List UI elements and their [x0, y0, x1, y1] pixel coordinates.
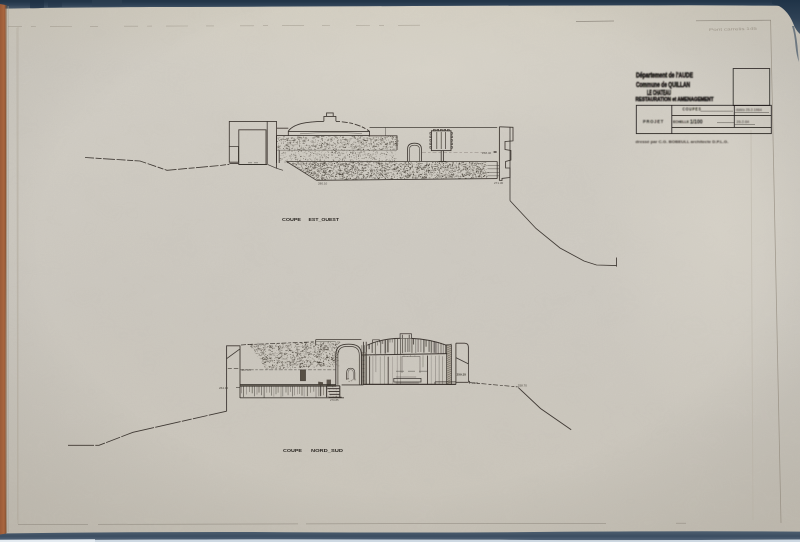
svg-text:258.40: 258.40: [482, 151, 492, 155]
svg-text:Commune de QUILLAN: Commune de QUILLAN: [636, 82, 690, 89]
svg-text:COUPES: COUPES: [683, 107, 702, 112]
svg-text:LE CHATEAU: LE CHATEAU: [647, 90, 671, 97]
svg-text:COUPE: COUPE: [283, 448, 303, 454]
svg-text:COUPE: COUPE: [282, 217, 302, 223]
svg-text:271.30: 271.30: [494, 181, 504, 185]
svg-text:1/100: 1/100: [690, 120, 703, 126]
svg-text:270.85: 270.85: [330, 398, 339, 402]
svg-text:258.70: 258.70: [518, 383, 528, 387]
svg-text:RESTAURATION et AMENAGEMENT: RESTAURATION et AMENAGEMENT: [636, 97, 714, 103]
svg-text:259.35: 259.35: [457, 373, 467, 377]
svg-text:Département de l'AUDE: Département de l'AUDE: [636, 73, 693, 80]
svg-text:dressé par C.G. BOBEULL archit: dressé par C.G. BOBEULL architecte D.P.L…: [636, 140, 729, 144]
svg-text:267.25: 267.25: [242, 368, 252, 372]
svg-text:datés 25.2.1964: datés 25.2.1964: [736, 108, 762, 112]
svg-text:26.2.64: 26.2.64: [737, 120, 750, 124]
svg-text:ECHELLE: ECHELLE: [673, 120, 690, 124]
svg-text:EST_OUEST: EST_OUEST: [309, 217, 340, 223]
svg-text:264.10: 264.10: [219, 386, 229, 390]
svg-text:280.10: 280.10: [318, 182, 328, 186]
svg-text:PROJET: PROJET: [643, 119, 664, 124]
svg-text:+GR: +GR: [472, 381, 479, 385]
svg-text:NORD_SUD: NORD_SUD: [311, 448, 344, 454]
